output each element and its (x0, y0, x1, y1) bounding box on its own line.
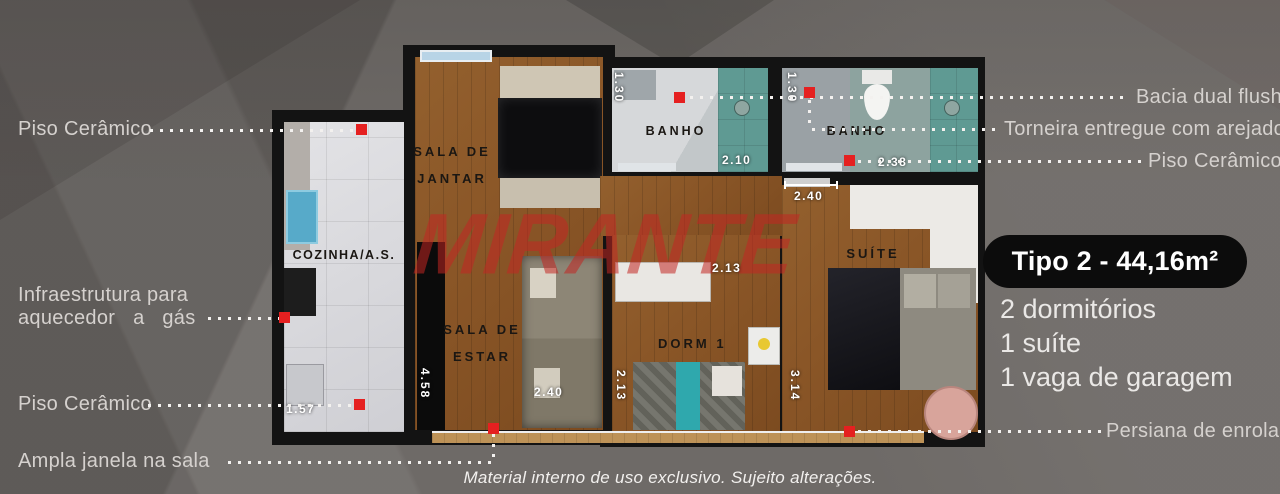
dim-line-suite-entry (784, 184, 838, 186)
banho1-door (618, 163, 676, 171)
callout-marker (674, 92, 685, 103)
room-label-suite: SUÍTE (844, 240, 902, 267)
callout-infraestrutura: Infraestrutura para aquecedor a gás (18, 284, 196, 330)
floorplan-marketing-image: MIRANTE SALA DE JANTAR COZINHA/A.S. BANH… (0, 0, 1280, 494)
dim-banho1-width: 1.30 (612, 72, 626, 103)
unit-feature-garagem: 1 vaga de garagem (1000, 360, 1233, 394)
callout-ampla-janela: Ampla janela na sala (18, 450, 210, 473)
callout-bacia: Bacia dual flush (1136, 86, 1280, 109)
unit-type-title: Tipo 2 - 44,16m² (1012, 246, 1219, 277)
unit-feature-suite: 1 suíte (1000, 326, 1233, 360)
leader-line (150, 129, 362, 132)
suite-pillow (904, 274, 936, 308)
dim-dorm1-side: 2.13 (614, 370, 628, 401)
washing-machine (286, 364, 324, 406)
callout-marker (844, 155, 855, 166)
room-label-dorm1: DORM 1 (658, 330, 726, 357)
dim-sala-estar-side: 4.58 (418, 368, 432, 399)
sofa-pillow (530, 268, 556, 298)
kitchen-sink (286, 190, 318, 244)
kitchen-stove (284, 268, 316, 316)
callout-marker (844, 426, 855, 437)
callout-marker (354, 399, 365, 410)
hallway-floor (600, 176, 782, 236)
dim-suite-side: 3.14 (788, 370, 802, 401)
banho2-door (786, 163, 842, 171)
dining-table (498, 98, 602, 178)
dining-chairs-top (500, 66, 600, 98)
dining-chairs-bottom (500, 178, 600, 208)
room-label-cozinha: COZINHA/A.S. (288, 242, 400, 269)
leader-line (208, 317, 282, 320)
banho2-shower (930, 68, 978, 172)
leader-line (812, 128, 998, 131)
room-label-sala-jantar: SALA DE JANTAR (402, 138, 502, 192)
leader-line (690, 96, 1128, 99)
callout-piso-ceramico-right: Piso Cerâmico (1148, 150, 1280, 173)
callout-torneira: Torneira entregue com arejador (1004, 118, 1280, 141)
dim-banho1-depth: 2.10 (722, 153, 751, 167)
leader-line (148, 404, 358, 407)
dim-suite-entry: 2.40 (794, 189, 823, 203)
suite-bed-throw (828, 268, 900, 390)
callout-marker (804, 87, 815, 98)
callout-piso-ceramico-top: Piso Cerâmico (18, 118, 152, 141)
leader-line (808, 100, 811, 128)
leader-line (858, 430, 1102, 433)
room-label-sala-estar: SALA DE ESTAR (434, 316, 530, 370)
desk-lamp-icon (758, 338, 770, 350)
disclaimer-text: Material interno de uso exclusivo. Sujei… (420, 468, 920, 488)
dorm1-wardrobe (615, 262, 711, 302)
toilet-tank (862, 70, 892, 84)
callout-piso-ceramico-bottom: Piso Cerâmico (18, 393, 152, 416)
unit-feature-dormitorios: 2 dormitórios (1000, 292, 1233, 326)
leader-line (228, 461, 494, 464)
unit-type-badge: Tipo 2 - 44,16m² (983, 235, 1247, 288)
callout-persiana: Persiana de enrolar (1106, 420, 1280, 443)
room-label-banho2: BANHO (826, 118, 888, 145)
leader-line (858, 160, 1144, 163)
shower-drain-icon (734, 100, 750, 116)
callout-marker (488, 423, 499, 434)
suite-pillow (938, 274, 970, 308)
shower-drain-icon (944, 100, 960, 116)
dim-dorm1-top: 2.13 (712, 261, 741, 275)
suite-closet (850, 185, 978, 229)
callout-marker (279, 312, 290, 323)
dim-sala-estar-bottom: 2.40 (534, 385, 563, 399)
dorm1-pillow (712, 366, 742, 396)
room-label-banho1: BANHO (645, 118, 707, 145)
callout-marker (356, 124, 367, 135)
dorm1-bed-runner (676, 362, 700, 430)
unit-features: 2 dormitórios 1 suíte 1 vaga de garagem (1000, 292, 1233, 394)
leader-line (492, 434, 495, 462)
jantar-window (420, 50, 492, 62)
